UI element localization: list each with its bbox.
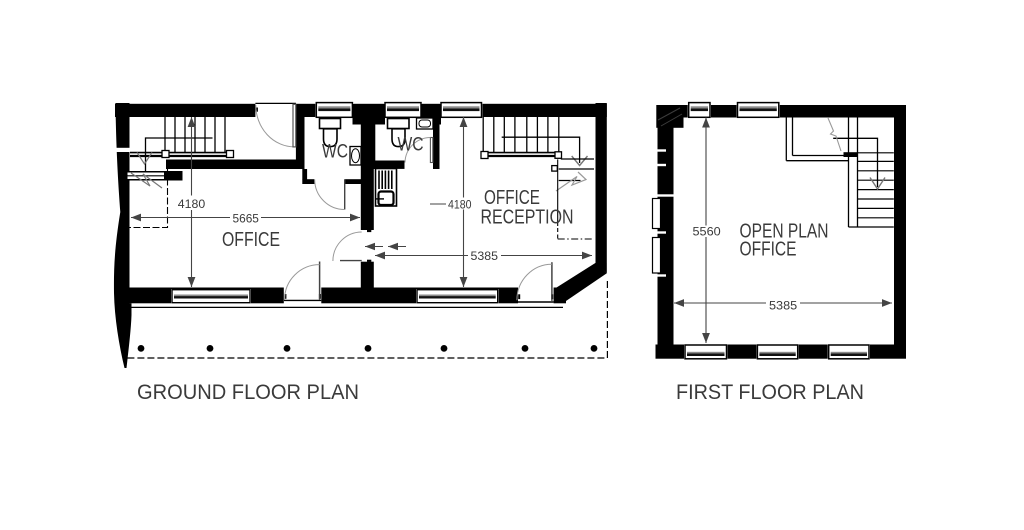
svg-text:OFFICE: OFFICE: [740, 238, 797, 261]
svg-text:5385: 5385: [471, 249, 499, 263]
svg-text:4180: 4180: [178, 197, 206, 211]
svg-text:FIRST FLOOR PLAN: FIRST FLOOR PLAN: [676, 381, 864, 404]
svg-text:OFFICE: OFFICE: [222, 228, 280, 251]
svg-text:5385: 5385: [769, 298, 798, 312]
svg-text:GROUND FLOOR PLAN: GROUND FLOOR PLAN: [137, 381, 359, 404]
svg-text:5665: 5665: [233, 212, 260, 226]
svg-text:RECEPTION: RECEPTION: [481, 206, 574, 229]
svg-text:WC: WC: [398, 135, 424, 156]
svg-text:4180: 4180: [448, 197, 472, 211]
svg-text:WC: WC: [322, 141, 348, 162]
svg-text:5560: 5560: [693, 225, 722, 239]
